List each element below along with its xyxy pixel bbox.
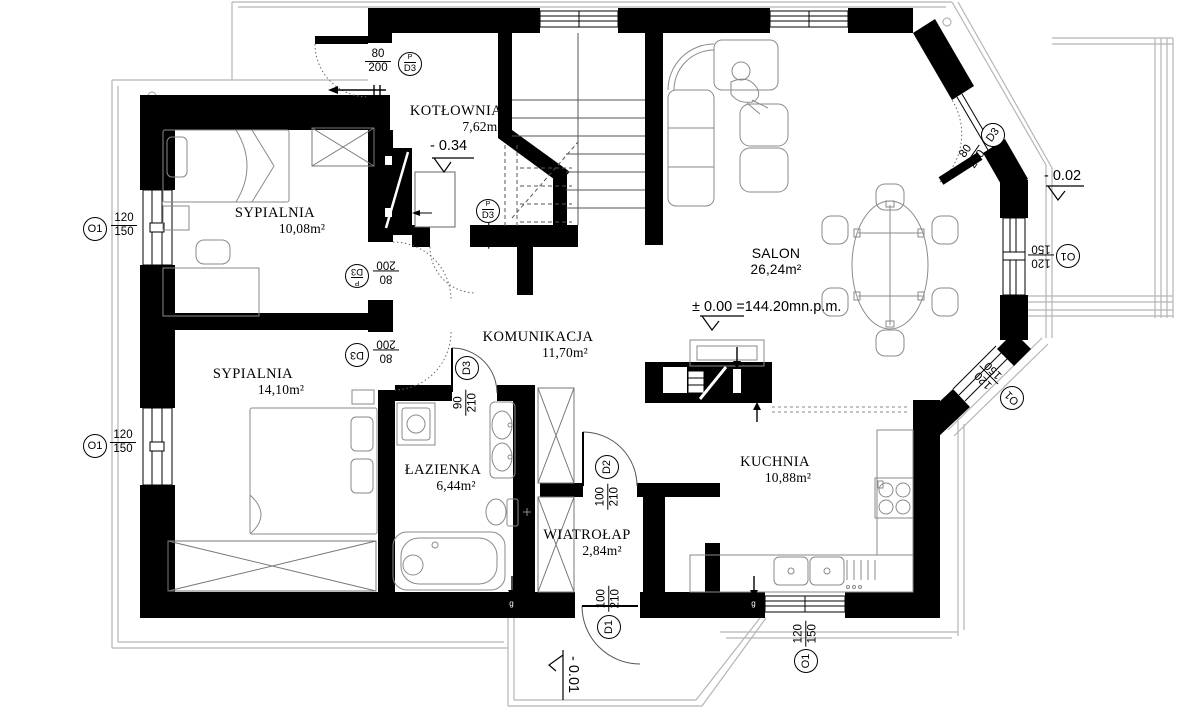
gas-marker: g (746, 596, 761, 611)
level-marker-salon: ± 0.00 =144.20mn.p.m. (692, 299, 841, 315)
door-tag-d3-sypialnia-2: D3 (345, 343, 369, 367)
floor-plan: KOTŁOWNIA 7,62m² SYPIALNIA 10,08m² SYPIA… (0, 0, 1200, 714)
door-dims-d1: 100 210 (595, 581, 622, 617)
door-tag-d3-sypialnia-1: P D3 (345, 264, 369, 288)
room-name: SALON (752, 245, 800, 261)
room-label-kotlownia: KOTŁOWNIA 7,62m² (391, 103, 521, 134)
room-label-komunikacja: KOMUNIKACJA 11,70m² (473, 329, 603, 360)
room-label-salon: SALON 26,24m² (711, 246, 841, 277)
level-marker-terrace: - 0.02 (1044, 168, 1081, 184)
room-label-kuchnia: KUCHNIA 10,88m² (710, 454, 840, 485)
door-tag-d1-entry: D1 (597, 615, 621, 639)
room-label-wiatrolap: WIATROŁAP 2,84m² (522, 527, 652, 558)
room-name: WIATROŁAP (543, 527, 630, 543)
room-area: 10,08m² (237, 221, 367, 236)
window-dims-bottom: 120 150 (792, 616, 819, 652)
window-tag-o1-bottom: O1 (794, 649, 818, 673)
door-dims-kotlownia-inner: 80 200 (475, 218, 502, 254)
level-marker-entry: - 0.01 (565, 656, 581, 712)
door-dims-kotlownia-entry: 80 200 (360, 48, 396, 75)
window-dims-left-bottom: 120 150 (105, 429, 141, 456)
window-tag-o1-left-top: O1 (83, 217, 107, 241)
window-tag-o1-left-bottom: O1 (83, 434, 107, 458)
room-area: 2,84m² (537, 543, 667, 558)
room-area: 11,70m² (500, 345, 630, 360)
room-name: SYPIALNIA (235, 205, 315, 221)
door-dims-sypialnia-2: 80 200 (368, 336, 404, 363)
door-dims-d2: 100 210 (594, 479, 621, 515)
door-dims-sypialnia-1: 80 200 (368, 257, 404, 284)
gas-marker: g (504, 596, 519, 611)
level-marker-kotlownia: - 0.34 (430, 138, 467, 154)
room-area: 26,24m² (711, 262, 841, 277)
room-name: ŁAZIENKA (405, 462, 482, 478)
kitchen-open-boundary (772, 407, 910, 412)
room-label-lazienka: ŁAZIENKA 6,44m² (378, 462, 508, 493)
door-tag-d2-wiatrolap: D2 (595, 455, 619, 479)
door-dims-lazienka: 90 210 (452, 385, 479, 421)
room-area: 14,10m² (216, 382, 346, 397)
door-tag-d3-lazienka: D3 (455, 356, 479, 380)
door-tag-d3-kotlownia-entry: P D3 (398, 52, 422, 76)
room-area: 6,44m² (391, 478, 521, 493)
room-name: SYPIALNIA (213, 366, 293, 382)
room-name: KUCHNIA (740, 454, 810, 470)
room-area: 7,62m² (417, 119, 547, 134)
room-label-sypialnia-2: SYPIALNIA 14,10m² (188, 366, 318, 397)
window-dims-left-top: 120 150 (106, 212, 142, 239)
room-name: KOMUNIKACJA (483, 329, 594, 345)
room-label-sypialnia-1: SYPIALNIA 10,08m² (210, 205, 340, 236)
room-name: KOTŁOWNIA (410, 103, 502, 119)
window-dims-right: 120 150 (1023, 241, 1059, 268)
room-area: 10,88m² (723, 470, 853, 485)
window-tag-o1-right: O1 (1056, 244, 1080, 268)
